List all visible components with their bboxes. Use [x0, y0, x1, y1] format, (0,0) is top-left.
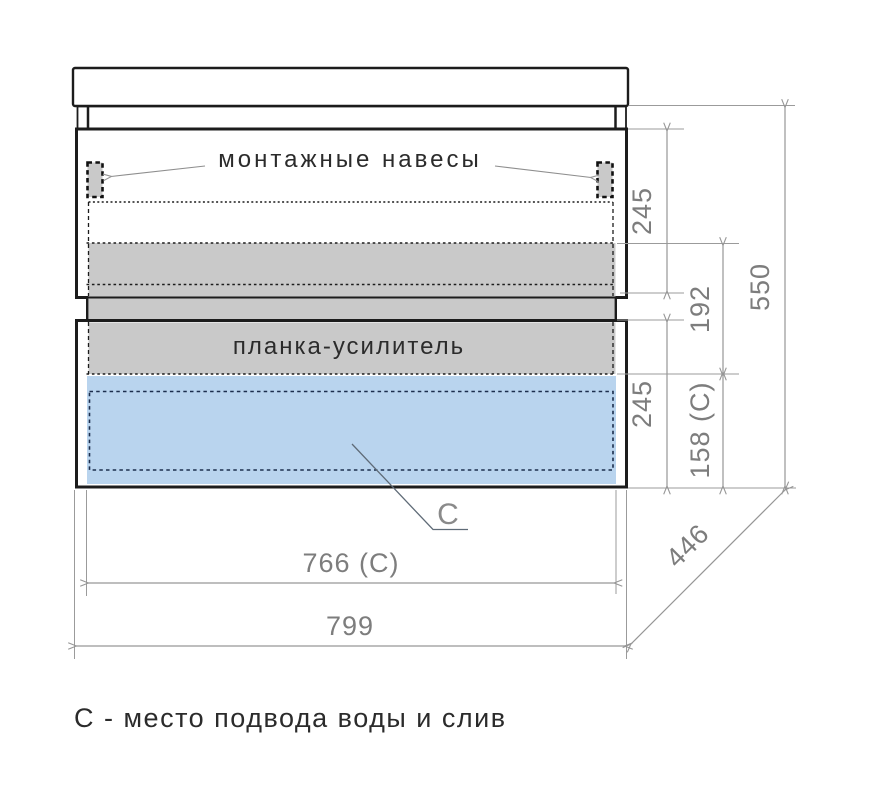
dim-value-hanger-to-bar: 192 — [685, 285, 715, 333]
dim-value-total-height: 550 — [745, 263, 775, 311]
dim-value-c-zone-height: 158 (C) — [685, 381, 715, 478]
mounting-hanger-right — [598, 163, 613, 198]
upper-back-rail-zone — [89, 243, 616, 297]
caption-c-explanation: С - место подвода воды и слив — [74, 703, 507, 733]
dim-value-lower-drawer-height: 245 — [627, 380, 657, 428]
drawing-canvas: монтажные навесы планка-усилитель C 245 … — [0, 0, 869, 800]
dim-value-inner-width: 766 (C) — [302, 548, 399, 578]
mounting-hangers-label: монтажные навесы — [218, 146, 481, 173]
vanity-technical-drawing: монтажные навесы планка-усилитель C 245 … — [0, 0, 869, 800]
dim-line-depth — [631, 490, 786, 645]
dim-value-upper-drawer-height: 245 — [627, 187, 657, 235]
mounting-hanger-left — [88, 163, 103, 198]
countertop — [73, 68, 628, 106]
dim-value-total-width: 799 — [326, 611, 374, 641]
cabinet-top-rail — [78, 107, 627, 130]
c-marker-label: C — [437, 498, 459, 531]
carcass-gap-fill — [88, 299, 616, 320]
reinforcement-bar-label: планка-усилитель — [233, 333, 465, 360]
dim-value-depth: 446 — [660, 518, 715, 573]
